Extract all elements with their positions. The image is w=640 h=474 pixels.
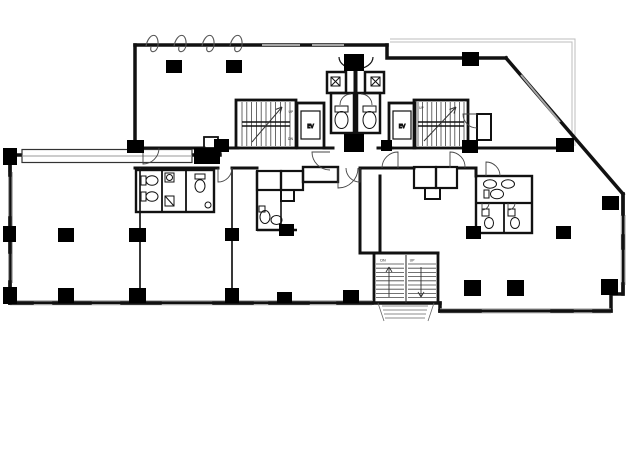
columns bbox=[3, 52, 619, 304]
left-bay-window bbox=[22, 150, 192, 163]
sink-icon bbox=[484, 180, 515, 188]
toilet-block-left bbox=[136, 168, 232, 212]
toilet-icon bbox=[259, 206, 282, 225]
stairwell-bottom: DN UP bbox=[374, 253, 438, 321]
stair-down-label: DN bbox=[288, 137, 294, 141]
stair-up-label: UP bbox=[419, 106, 424, 110]
service-boxes-right bbox=[414, 167, 457, 199]
floor-plan-canvas: EV EV UP DN UP DN UP bbox=[0, 0, 640, 474]
toilet-icon bbox=[141, 174, 205, 201]
stair-up-label: UP bbox=[410, 259, 416, 263]
stair-treads bbox=[242, 102, 290, 146]
stair-up-label: UP bbox=[288, 110, 293, 114]
toilet-icon bbox=[482, 189, 520, 228]
sink-icon bbox=[165, 173, 211, 208]
floor-plan-drawing: EV EV UP DN UP DN UP bbox=[0, 0, 640, 474]
elevator-left: EV bbox=[297, 103, 324, 148]
door-arc-icon bbox=[338, 168, 358, 188]
stairwell-right: UP bbox=[414, 100, 468, 148]
elevator-label: EV bbox=[399, 124, 406, 130]
toilet-block-center bbox=[257, 167, 358, 231]
stairwell-left: UP DN bbox=[236, 100, 296, 148]
stair-arrow-icon bbox=[386, 267, 424, 297]
door-arc-icon bbox=[382, 152, 398, 168]
stair-tail-outside bbox=[378, 303, 434, 321]
stair-down-label: DN bbox=[380, 259, 386, 263]
elevator-label: EV bbox=[307, 124, 314, 130]
door-arc-icon bbox=[450, 152, 465, 168]
door-arc-icon bbox=[218, 168, 232, 182]
door-arc-icon bbox=[463, 114, 477, 128]
toilet-block-right bbox=[476, 162, 532, 233]
stair-arrow-icon bbox=[424, 107, 456, 141]
elevator-right: EV bbox=[389, 103, 415, 148]
